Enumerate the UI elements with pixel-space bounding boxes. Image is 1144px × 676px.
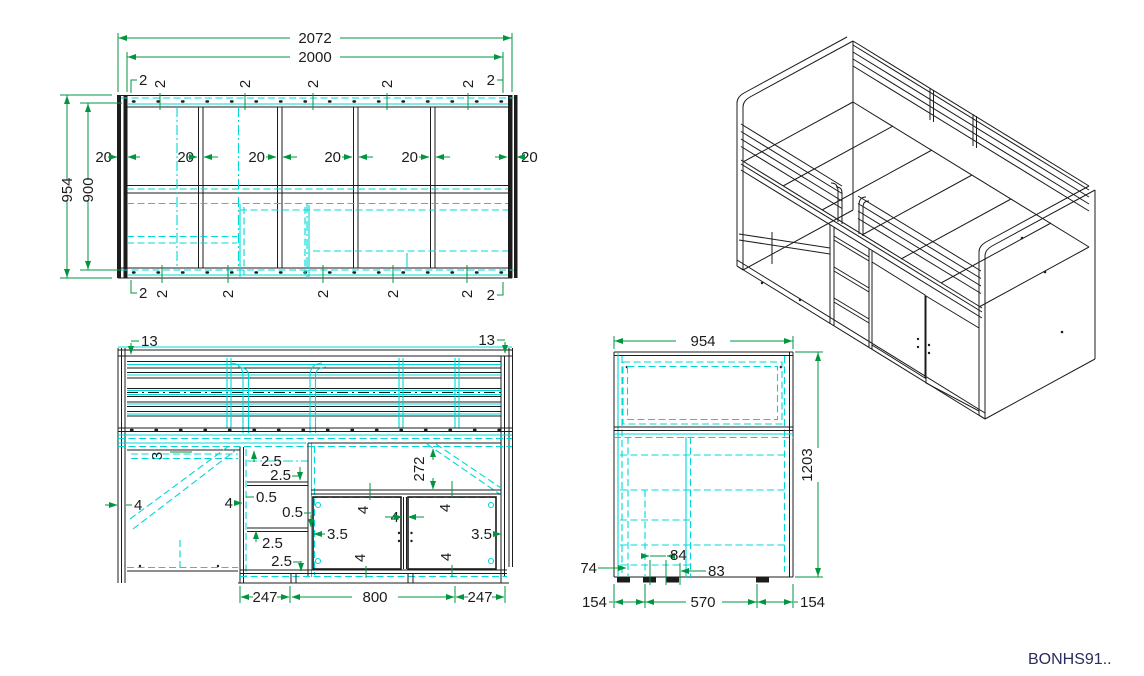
dim-front-panel: 4: [134, 497, 142, 514]
dim-side-foot: 83: [708, 563, 725, 580]
dim-top-depth-total: 954: [59, 177, 76, 202]
dim-top-gap: 2: [315, 290, 332, 298]
dim-top-gap: 2: [459, 290, 476, 298]
dim-front-gap25: 2.5: [262, 535, 283, 552]
sheet-background: [0, 0, 1144, 676]
dim-front-gap05: 0.5: [282, 504, 303, 521]
dim-top-gap: 2: [385, 290, 402, 298]
dim-front-doors-width: 800: [362, 589, 387, 606]
dim-top-gap: 2: [139, 72, 147, 89]
drawing-sheet: 2072 2000 954 900 2 2 2 2 2: [0, 0, 1144, 676]
dim-front-rail-offset: 13: [478, 332, 495, 349]
dim-top-gap: 2: [460, 80, 477, 88]
dim-top-gap: 2: [237, 80, 254, 88]
dim-front-panel: 4: [437, 504, 454, 512]
dim-top-gap: 2: [220, 290, 237, 298]
dim-front-gap05: 0.5: [256, 489, 277, 506]
dim-front-desk-top: 3: [149, 452, 166, 460]
dim-front-panel: 4: [225, 495, 233, 512]
dim-top-gap: 2: [305, 80, 322, 88]
technical-drawing: 2072 2000 954 900 2 2 2 2 2: [0, 0, 1144, 676]
drawing-code: BONHS91..: [1028, 651, 1112, 668]
dim-side-margin: 154: [800, 594, 825, 611]
dim-front-opening-height: 272: [411, 456, 428, 481]
dim-top-gap: 2: [152, 80, 169, 88]
dim-top-slat: 20: [324, 149, 341, 166]
dim-side-depth: 954: [690, 333, 715, 350]
dim-front-panel: 4: [438, 553, 455, 561]
dim-front-shelf-width: 247: [467, 589, 492, 606]
dim-side-margin: 154: [582, 594, 607, 611]
dim-top-width-total: 2072: [298, 30, 331, 47]
dim-front-gap25: 2.5: [270, 467, 291, 484]
dim-top-gap: 2: [487, 287, 495, 304]
dim-top-slat: 20: [248, 149, 265, 166]
dim-top-depth-inner: 900: [80, 177, 97, 202]
dim-top-width-inner: 2000: [298, 49, 331, 66]
dim-side-height: 1203: [799, 448, 816, 481]
dim-side-foot-gap: 84: [670, 547, 687, 564]
dim-top-gap: 2: [487, 72, 495, 89]
dim-front-gap25: 2.5: [271, 553, 292, 570]
dim-front-clearance: 3.5: [327, 526, 348, 543]
dim-front-clearance: 3.5: [471, 526, 492, 543]
dim-front-shelf-width: 247: [252, 589, 277, 606]
dim-front-panel: 4: [352, 554, 369, 562]
dim-top-gap: 2: [154, 290, 171, 298]
dim-top-gap: 2: [139, 285, 147, 302]
dim-side-plinth: 74: [580, 560, 597, 577]
dim-side-span: 570: [690, 594, 715, 611]
dim-front-panel: 4: [355, 506, 372, 514]
dim-top-slat: 20: [521, 149, 538, 166]
dim-top-slat: 20: [401, 149, 418, 166]
dim-front-rail-offset: 13: [141, 333, 158, 350]
dim-top-gap: 2: [379, 80, 396, 88]
